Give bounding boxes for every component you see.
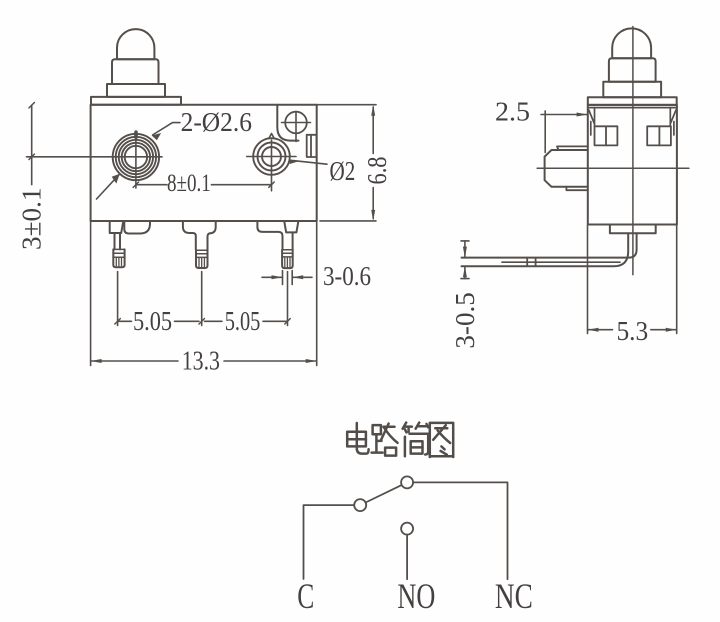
svg-text:5.3: 5.3 <box>617 316 649 346</box>
svg-text:NC: NC <box>495 576 533 616</box>
svg-text:3-0.5: 3-0.5 <box>450 292 480 348</box>
svg-text:5.05: 5.05 <box>225 306 261 336</box>
svg-text:3±0.1: 3±0.1 <box>17 188 47 251</box>
svg-text:6.8: 6.8 <box>362 157 392 185</box>
svg-text:C: C <box>297 576 314 616</box>
svg-text:Ø2: Ø2 <box>330 156 356 186</box>
svg-text:13.3: 13.3 <box>182 346 220 376</box>
svg-text:2-Ø2.6: 2-Ø2.6 <box>181 107 252 137</box>
svg-text:3-0.6: 3-0.6 <box>323 261 371 291</box>
svg-text:NO: NO <box>397 576 435 616</box>
svg-text:5.05: 5.05 <box>133 306 172 336</box>
svg-text:2.5: 2.5 <box>495 97 530 127</box>
svg-text:8±0.1: 8±0.1 <box>167 170 211 197</box>
